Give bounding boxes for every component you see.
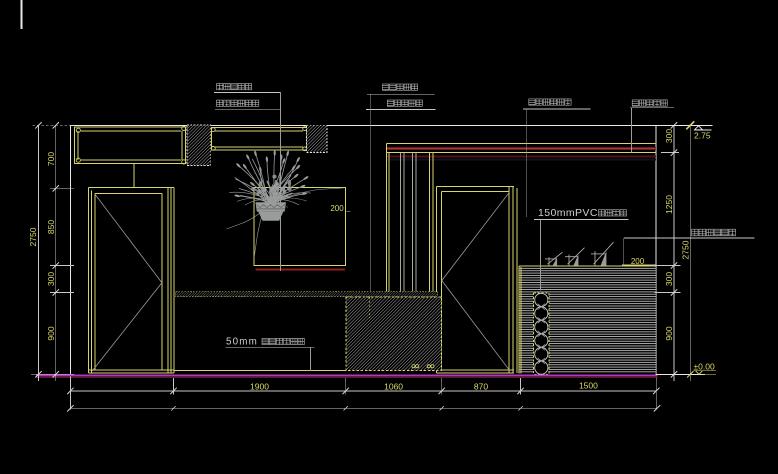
svg-text:900: 900 xyxy=(664,326,674,340)
svg-text:2750: 2750 xyxy=(28,227,38,246)
svg-text:1250: 1250 xyxy=(664,195,674,214)
svg-text:150mmPVC: 150mmPVC xyxy=(538,207,598,219)
svg-text:900: 900 xyxy=(46,326,56,340)
svg-text:1900: 1900 xyxy=(250,381,269,391)
svg-text:2.75: 2.75 xyxy=(694,130,711,140)
svg-text:±0.00: ±0.00 xyxy=(694,361,715,371)
svg-text:700: 700 xyxy=(46,152,56,166)
svg-text:50mm: 50mm xyxy=(226,337,258,348)
svg-text:300: 300 xyxy=(664,272,674,286)
svg-text:1060: 1060 xyxy=(384,381,403,391)
svg-text:300: 300 xyxy=(46,272,56,286)
svg-text:200: 200 xyxy=(330,204,344,213)
svg-text:1500: 1500 xyxy=(579,380,598,390)
svg-text:300: 300 xyxy=(664,129,674,143)
svg-text:870: 870 xyxy=(474,381,488,391)
svg-text:2750: 2750 xyxy=(681,240,691,259)
svg-text:850: 850 xyxy=(46,220,56,234)
